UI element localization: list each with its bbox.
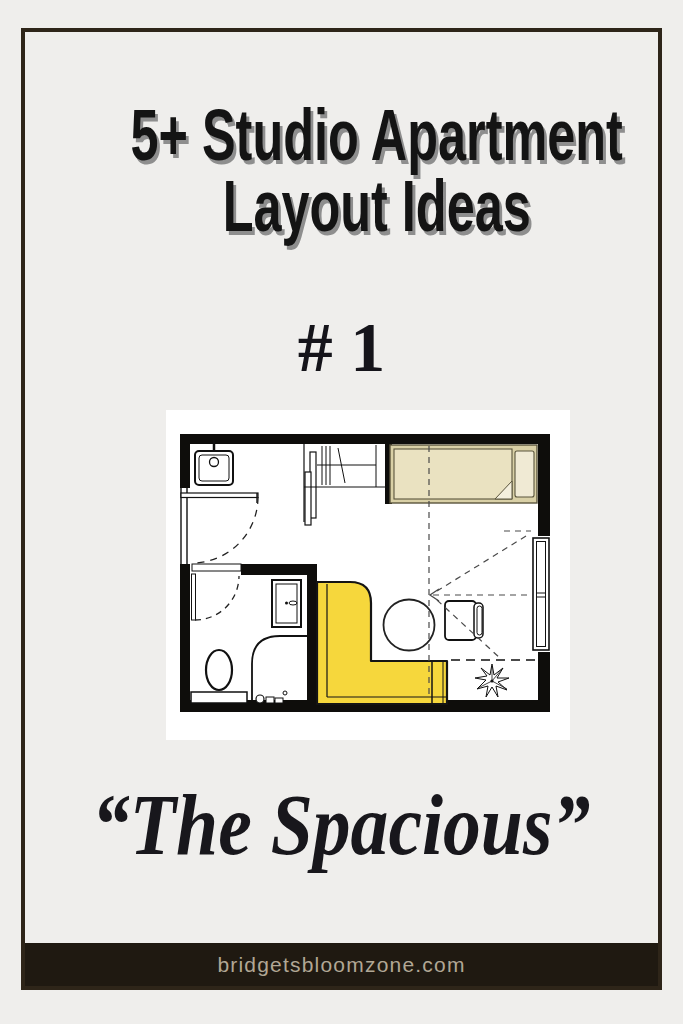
- pillow: [515, 451, 534, 497]
- item-number: # 1: [25, 308, 658, 388]
- title-line-1: 5+ Studio Apartment: [131, 95, 623, 175]
- desk-chair: [445, 601, 483, 640]
- title-line-2: Layout Ideas: [223, 166, 531, 246]
- layout-caption: “The Spacious”: [25, 782, 658, 868]
- door-header: [192, 564, 241, 571]
- vanity-cabinet: [272, 580, 301, 627]
- title-lines: 5+ Studio Apartment Layout Ideas: [131, 100, 623, 242]
- round-table: [384, 600, 435, 651]
- pin-image: 5+ Studio Apartment Layout Ideas # 1: [0, 0, 683, 1024]
- window: [533, 538, 549, 650]
- floor-plan-card: [166, 410, 570, 740]
- decorative-frame: 5+ Studio Apartment Layout Ideas # 1: [21, 28, 662, 990]
- page-title: 5+ Studio Apartment Layout Ideas: [25, 100, 658, 242]
- bathroom-door-leaf: [192, 574, 196, 620]
- bed: [390, 445, 537, 503]
- website-url: bridgetsbloomzone.com: [217, 953, 465, 977]
- layout-caption-text: “The Spacious”: [92, 782, 590, 868]
- footer-bar: bridgetsbloomzone.com: [25, 943, 658, 986]
- floor-plan-image: [166, 410, 570, 740]
